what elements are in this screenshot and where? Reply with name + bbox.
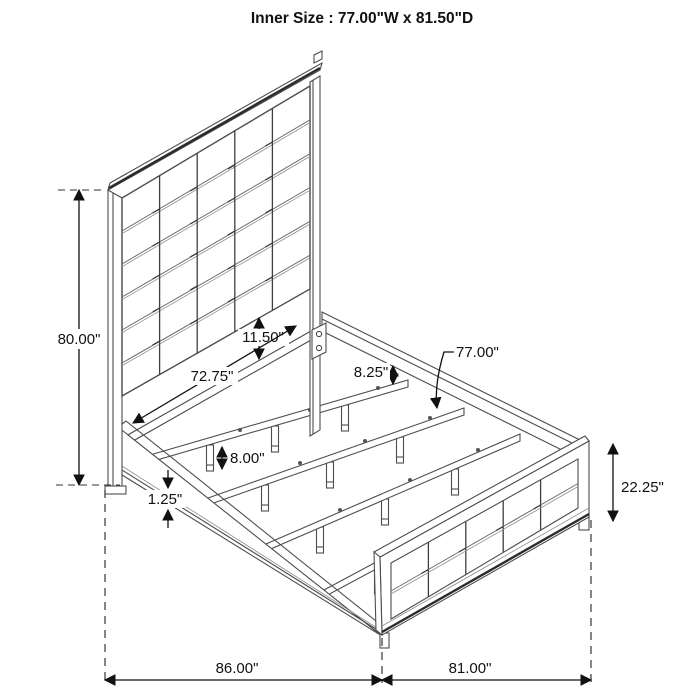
- diagram-title: Inner Size : 77.00"W x 81.50"D: [251, 10, 473, 27]
- dim-leg-height: 8.00": [222, 447, 265, 469]
- bed-dimension-diagram: 80.00" 11.50" 72.75" 8.25" 77.00": [0, 0, 700, 700]
- right-side-rail: [322, 312, 588, 463]
- footboard: [374, 436, 589, 648]
- dim-leg-height-label: 8.00": [230, 450, 265, 467]
- bracket-hole: [316, 331, 321, 336]
- dim-overall-width: 86.00": [105, 660, 382, 680]
- dim-overall-depth-label: 81.00": [449, 660, 492, 677]
- headboard-right-post: [310, 76, 326, 436]
- rail-bracket: [312, 323, 326, 359]
- bracket-hole: [316, 345, 321, 350]
- dim-footboard-height: 22.25": [613, 444, 664, 521]
- dim-rail-to-slat: 8.25": [352, 363, 393, 384]
- dim-footboard-height-label: 22.25": [621, 479, 664, 496]
- dim-inner-width-label: 72.75": [191, 368, 234, 385]
- dim-overall-width-label: 86.00": [216, 660, 259, 677]
- dim-rail-to-slat-label: 8.25": [354, 364, 389, 381]
- headboard: [105, 51, 326, 494]
- dim-slat-length-label: 77.00": [456, 344, 499, 361]
- dim-overall-depth: 81.00": [382, 660, 591, 680]
- dim-base-trim-label: 1.25": [148, 491, 183, 508]
- diagram-canvas: 80.00" 11.50" 72.75" 8.25" 77.00": [0, 0, 700, 700]
- dim-headboard-height-label: 80.00": [58, 331, 101, 348]
